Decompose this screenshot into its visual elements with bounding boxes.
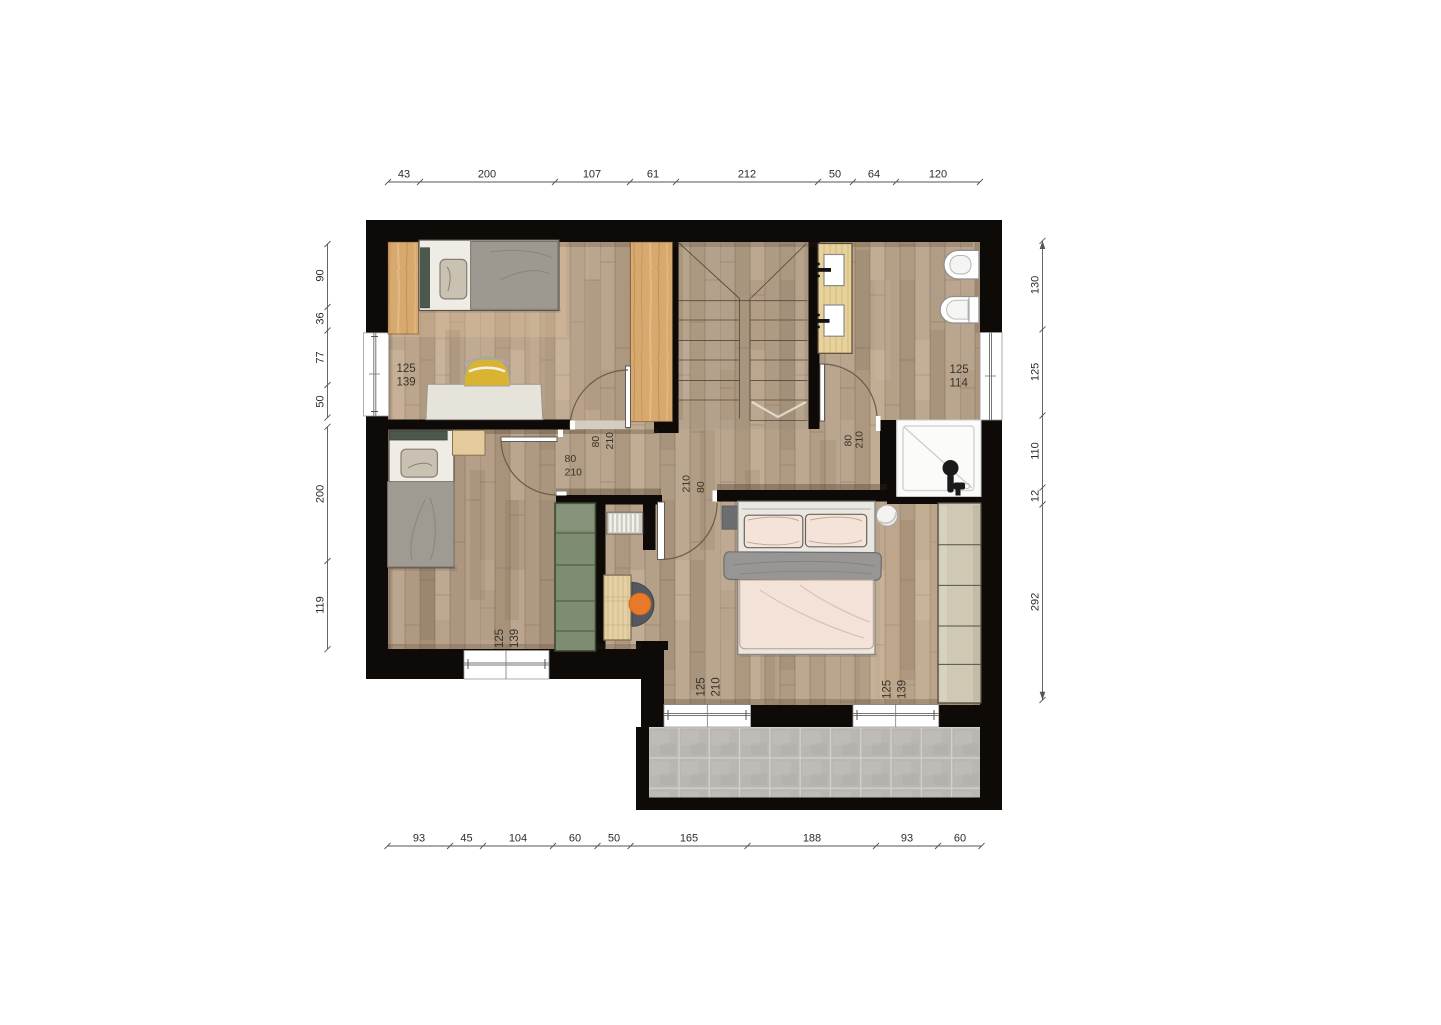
svg-text:292: 292 <box>1030 593 1042 611</box>
svg-text:77: 77 <box>315 351 327 363</box>
svg-text:50: 50 <box>829 169 841 181</box>
svg-text:210: 210 <box>604 432 616 450</box>
svg-text:104: 104 <box>509 833 527 845</box>
svg-text:210: 210 <box>711 677 723 696</box>
svg-text:43: 43 <box>398 169 410 181</box>
svg-text:120: 120 <box>929 169 947 181</box>
svg-text:125: 125 <box>882 680 894 699</box>
svg-text:45: 45 <box>460 833 472 845</box>
svg-text:80: 80 <box>565 453 577 465</box>
svg-text:60: 60 <box>569 833 581 845</box>
svg-text:200: 200 <box>315 485 327 503</box>
svg-text:139: 139 <box>897 680 909 699</box>
svg-text:60: 60 <box>954 833 966 845</box>
svg-text:125: 125 <box>950 364 969 376</box>
svg-text:114: 114 <box>950 378 969 390</box>
svg-text:188: 188 <box>803 833 821 845</box>
svg-text:90: 90 <box>315 269 327 281</box>
svg-text:130: 130 <box>1030 276 1042 294</box>
svg-text:125: 125 <box>397 363 416 375</box>
svg-text:125: 125 <box>696 677 708 696</box>
svg-text:125: 125 <box>494 629 506 648</box>
svg-text:64: 64 <box>868 169 880 181</box>
svg-text:200: 200 <box>478 169 496 181</box>
svg-text:210: 210 <box>565 467 583 479</box>
svg-text:93: 93 <box>901 833 913 845</box>
svg-text:125: 125 <box>1030 363 1042 381</box>
svg-text:50: 50 <box>315 395 327 407</box>
svg-text:61: 61 <box>647 169 659 181</box>
svg-text:165: 165 <box>680 833 698 845</box>
svg-text:107: 107 <box>583 169 601 181</box>
svg-text:210: 210 <box>854 431 866 449</box>
svg-text:119: 119 <box>315 596 327 614</box>
svg-text:139: 139 <box>509 629 521 648</box>
svg-text:12: 12 <box>1030 490 1042 502</box>
svg-text:80: 80 <box>590 436 602 448</box>
svg-text:139: 139 <box>397 377 416 389</box>
svg-text:80: 80 <box>695 481 707 493</box>
svg-text:210: 210 <box>681 475 693 493</box>
svg-text:36: 36 <box>315 312 327 324</box>
svg-text:93: 93 <box>413 833 425 845</box>
svg-text:212: 212 <box>738 169 756 181</box>
svg-text:110: 110 <box>1030 442 1042 460</box>
svg-text:50: 50 <box>608 833 620 845</box>
